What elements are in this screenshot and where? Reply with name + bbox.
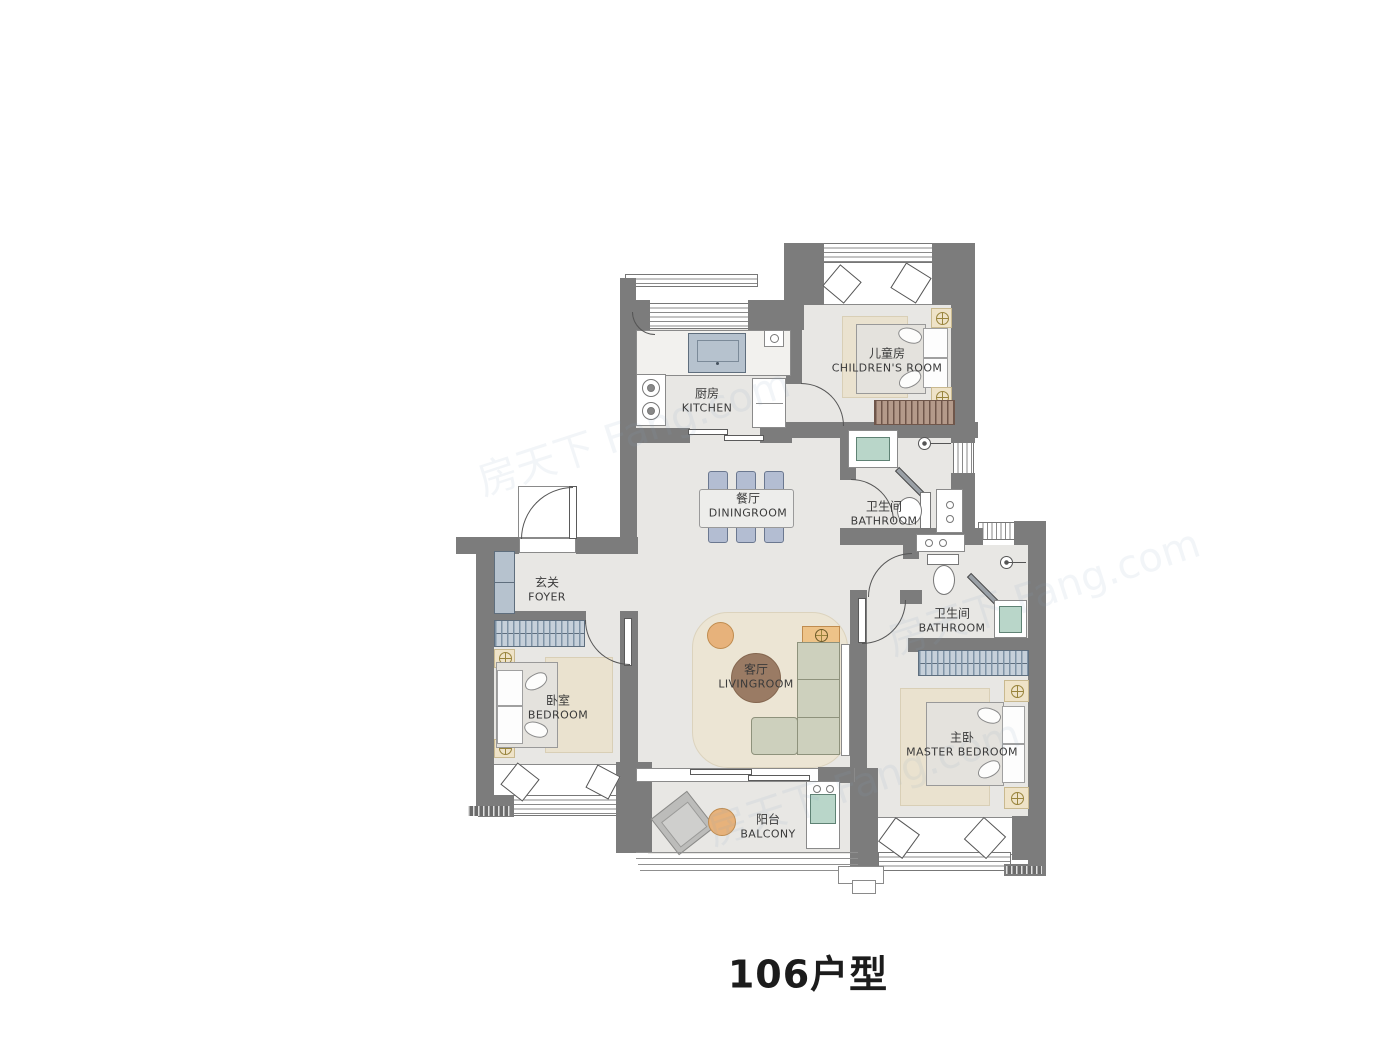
knob-icon [946, 501, 954, 509]
room-label-zh: 卫生间 [919, 607, 986, 622]
shoe-cabinet [494, 551, 515, 614]
floor-plan: 房天下 Fang.com 房天下 Fang.com 房天下 Fang.com 厨… [0, 0, 1400, 1050]
sofa-chaise [751, 717, 798, 755]
room-label-zh: 卫生间 [851, 500, 918, 515]
pouf [707, 622, 734, 649]
bed-mattress [497, 706, 523, 744]
lamp-icon [1011, 685, 1024, 698]
room-label-en: BALCONY [740, 828, 795, 842]
toilet-tank [927, 554, 959, 565]
sink-basin [697, 340, 739, 362]
room-label-diningroom: 餐厅 DININGROOM [709, 492, 787, 521]
nightstand [1004, 787, 1029, 809]
sofa-seam [798, 717, 839, 718]
room-label-livingroom: 客厅 LIVINGROOM [718, 663, 793, 692]
balcony-rail [640, 870, 858, 871]
room-label-en: BATHROOM [851, 515, 918, 529]
knob-icon [925, 539, 933, 547]
room-label-bathroom-1: 卫生间 BATHROOM [851, 500, 918, 529]
bathroom-cabinet [936, 489, 963, 533]
room-label-en: KITCHEN [682, 402, 732, 416]
room-label-en: DININGROOM [709, 507, 787, 521]
wall [576, 537, 638, 554]
cabinet-divider [495, 582, 514, 583]
bed-mattress [497, 670, 523, 706]
lamp-icon [1011, 792, 1024, 805]
room-label-balcony: 阳台 BALCONY [740, 813, 795, 842]
window [625, 274, 758, 287]
room-label-master-bedroom: 主卧 MASTER BEDROOM [906, 731, 1018, 760]
balcony-sliding-door [690, 769, 752, 775]
wall [784, 243, 824, 305]
bathroom1-sink [856, 437, 890, 461]
shower-arm [930, 443, 951, 444]
room-label-bathroom-2: 卫生间 BATHROOM [919, 607, 986, 636]
room-label-zh: 卧室 [528, 694, 588, 709]
tv-cabinet [841, 644, 850, 756]
bathroom2-vanity [916, 534, 965, 552]
appliance-knob-icon [770, 334, 779, 343]
wall [476, 537, 494, 814]
sofa [797, 642, 840, 755]
nightstand [931, 308, 952, 328]
lamp-icon [815, 629, 828, 642]
kitchen-window [648, 303, 751, 329]
room-label-en: BEDROOM [528, 709, 588, 723]
shower-arm [1008, 562, 1026, 563]
balcony-rail [636, 852, 858, 853]
wall-end-hatch [468, 806, 510, 816]
wall [760, 428, 792, 443]
bedroom-wardrobe [494, 620, 585, 647]
room-label-en: CHILDREN'S ROOM [832, 362, 943, 376]
room-label-zh: 厨房 [682, 387, 732, 402]
room-label-childrens-room: 儿童房 CHILDREN'S ROOM [832, 347, 943, 376]
wall-end-hatch [1006, 866, 1042, 874]
faucet-icon [716, 362, 719, 365]
balcony-rail [636, 858, 858, 859]
room-label-en: LIVINGROOM [718, 678, 793, 692]
balcony-rail [638, 864, 858, 865]
room-label-zh: 餐厅 [709, 492, 787, 507]
room-label-en: BATHROOM [919, 622, 986, 636]
room-label-kitchen: 厨房 KITCHEN [682, 387, 732, 416]
knob-icon [946, 515, 954, 523]
room-label-en: FOYER [528, 591, 566, 605]
wall [1012, 816, 1032, 860]
kitchen-small-appliance [764, 330, 784, 347]
room-label-zh: 客厅 [718, 663, 793, 678]
room-label-zh: 玄关 [528, 576, 566, 591]
room-label-foyer: 玄关 FOYER [528, 576, 566, 605]
bathroom1-window [953, 441, 974, 475]
lamp-icon [936, 312, 949, 325]
nightstand [1004, 680, 1029, 702]
childrens-window [822, 243, 934, 263]
bathroom2-window [978, 522, 1019, 540]
sliding-door [724, 435, 764, 441]
entry-threshold [519, 538, 576, 553]
plan-title: 106户型 [728, 944, 888, 999]
room-label-en: MASTER BEDROOM [906, 746, 1018, 760]
room-label-zh: 主卧 [906, 731, 1018, 746]
balcony-step [852, 880, 876, 894]
room-label-zh: 儿童房 [832, 347, 943, 362]
childrens-wardrobe [874, 400, 955, 425]
room-label-zh: 阳台 [740, 813, 795, 828]
knob-icon [939, 539, 947, 547]
sofa-seam [798, 679, 839, 680]
room-label-bedroom: 卧室 BEDROOM [528, 694, 588, 723]
